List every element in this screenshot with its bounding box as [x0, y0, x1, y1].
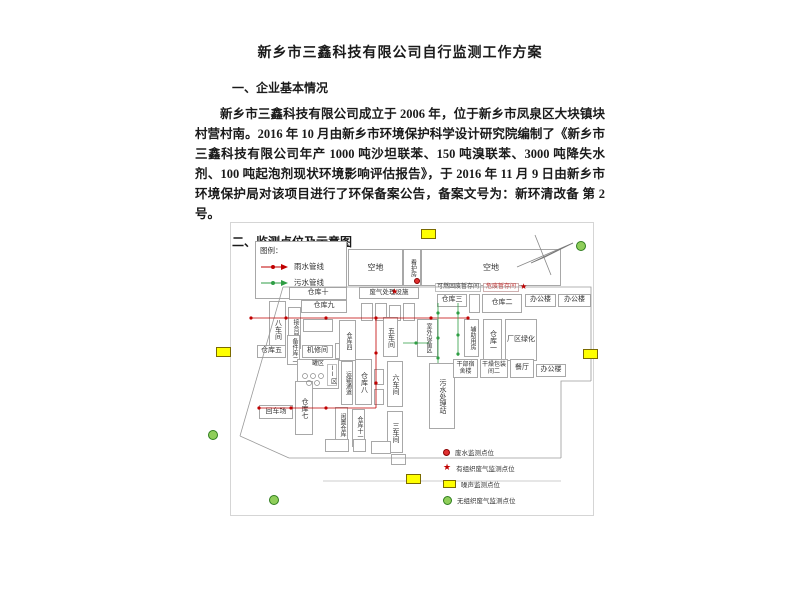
- building-office-bottom: 办公楼: [536, 364, 566, 377]
- building-sewage-station: 污水处理站: [429, 363, 455, 429]
- fugitive-gas-point-icon: [576, 241, 586, 251]
- fugitive-gas-point-icon: [208, 430, 218, 440]
- legend-wastewater-label: 废水监测点位: [455, 447, 494, 457]
- noise-point-icon: [216, 347, 231, 357]
- building-office2: 办公楼: [558, 294, 591, 307]
- area-greening: 厂区绿化: [505, 319, 537, 361]
- rain-line-icon: [260, 263, 290, 271]
- page-title: 新乡市三鑫科技有限公司自行监测工作方案: [195, 42, 605, 62]
- building-office1: 办公楼: [525, 294, 556, 307]
- legend-row-wastewater: 废水监测点位: [443, 447, 591, 457]
- noise-point-icon: [421, 229, 436, 239]
- document-body: 新乡市三鑫科技有限公司自行监测工作方案 一、企业基本情况 新乡市三鑫科技有限公司…: [195, 42, 605, 250]
- building-unlabeled: [374, 369, 384, 385]
- building-dormitory: 干部宿舍楼: [453, 359, 478, 378]
- pipeline-legend-title: 图例：: [260, 245, 342, 256]
- building-warehouse10: 仓库十: [289, 287, 347, 300]
- building-repair-room: 机修间: [302, 345, 333, 358]
- building-warehouse5: 仓库五: [257, 345, 286, 358]
- noise-point-icon: [443, 480, 456, 488]
- tank-area-label: 罐区: [312, 361, 324, 368]
- rain-pipeline-row: 雨水管线: [260, 261, 342, 272]
- organized-gas-point-icon: ★: [443, 465, 451, 471]
- building-warehouse7: 仓库七: [295, 381, 313, 435]
- noise-point-icon: [406, 474, 421, 484]
- rain-line-label: 雨水管线: [294, 261, 324, 272]
- building-drying-packing2: 干燥包装间二: [480, 359, 508, 378]
- monitoring-point-legend: 废水监测点位 ★ 有组织废气监测点位 噪声监测点位 无组织废气监测点位: [443, 441, 591, 505]
- legend-row-fugitive-gas: 无组织废气监测点位: [443, 495, 591, 505]
- building-auxiliary-room: 辅助用房: [464, 319, 479, 357]
- building-warehouse9: 仓库九: [301, 300, 347, 313]
- building-warehouse1: 仓库一: [483, 319, 502, 361]
- building-warehouse4: 仓库四: [339, 320, 356, 361]
- transport-corridor: 运输通道: [341, 361, 353, 405]
- building-unlabeled: [469, 294, 480, 313]
- building-workshop6: 六车间: [387, 361, 403, 407]
- section1-heading: 一、企业基本情况: [232, 79, 605, 96]
- building-idle-warehouse: 闲置仓库: [335, 407, 348, 443]
- legend-noise-label: 噪声监测点位: [461, 479, 500, 489]
- building-outdoor-equipment: 室外设备区: [417, 319, 438, 357]
- building-warehouse3: 仓库三: [437, 294, 467, 307]
- open-land-left: 空地: [348, 249, 403, 286]
- turn-yard: 回车场: [259, 405, 293, 419]
- zone2-label: II区: [327, 364, 337, 386]
- label-hazardous-waste-storage: 危废暂存间: [483, 283, 519, 292]
- section1-paragraph: 新乡市三鑫科技有限公司成立于 2006 年，位于新乡市凤泉区大块镇块村营村南。2…: [195, 104, 605, 224]
- legend-organized-gas-label: 有组织废气监测点位: [456, 463, 515, 473]
- building-unlabeled: [325, 439, 349, 452]
- noise-point-icon: [583, 349, 598, 359]
- building-unlabeled: [303, 319, 333, 332]
- open-land-right: 空地: [421, 249, 561, 286]
- sewage-line-icon: [260, 279, 290, 287]
- site-plan-figure: 图例： 雨水管线 污水管线 空地 看护房 空地 仓库十 仓库九 废气处理设施 可…: [230, 222, 594, 516]
- legend-fugitive-gas-label: 无组织废气监测点位: [457, 495, 516, 505]
- building-gas-treatment: 废气处理设施: [359, 287, 419, 299]
- building-warehouse8: 仓库八: [355, 359, 372, 405]
- legend-row-organized-gas: ★ 有组织废气监测点位: [443, 463, 591, 473]
- building-unlabeled: [374, 389, 384, 405]
- fugitive-gas-point-icon: [443, 496, 452, 505]
- guard-room: 看护房: [403, 249, 421, 286]
- building-unlabeled: [391, 454, 406, 465]
- building-unlabeled: [371, 441, 391, 454]
- fugitive-gas-point-icon: [269, 495, 279, 505]
- building-unlabeled: [361, 303, 373, 321]
- legend-row-noise: 噪声监测点位: [443, 479, 591, 489]
- building-workshop5: 五车间: [383, 317, 398, 357]
- label-combustible-waste-storage: 可燃固废暂存间: [435, 283, 481, 292]
- building-unlabeled: [403, 303, 415, 321]
- building-unlabeled: [353, 439, 366, 452]
- building-canteen: 餐厅: [510, 359, 534, 378]
- building-warehouse2: 仓库二: [482, 294, 522, 313]
- document-page: { "doc": { "title": "新乡市三鑫科技有限公司自行监测工作方案…: [0, 0, 800, 600]
- wastewater-point-icon: [443, 449, 450, 456]
